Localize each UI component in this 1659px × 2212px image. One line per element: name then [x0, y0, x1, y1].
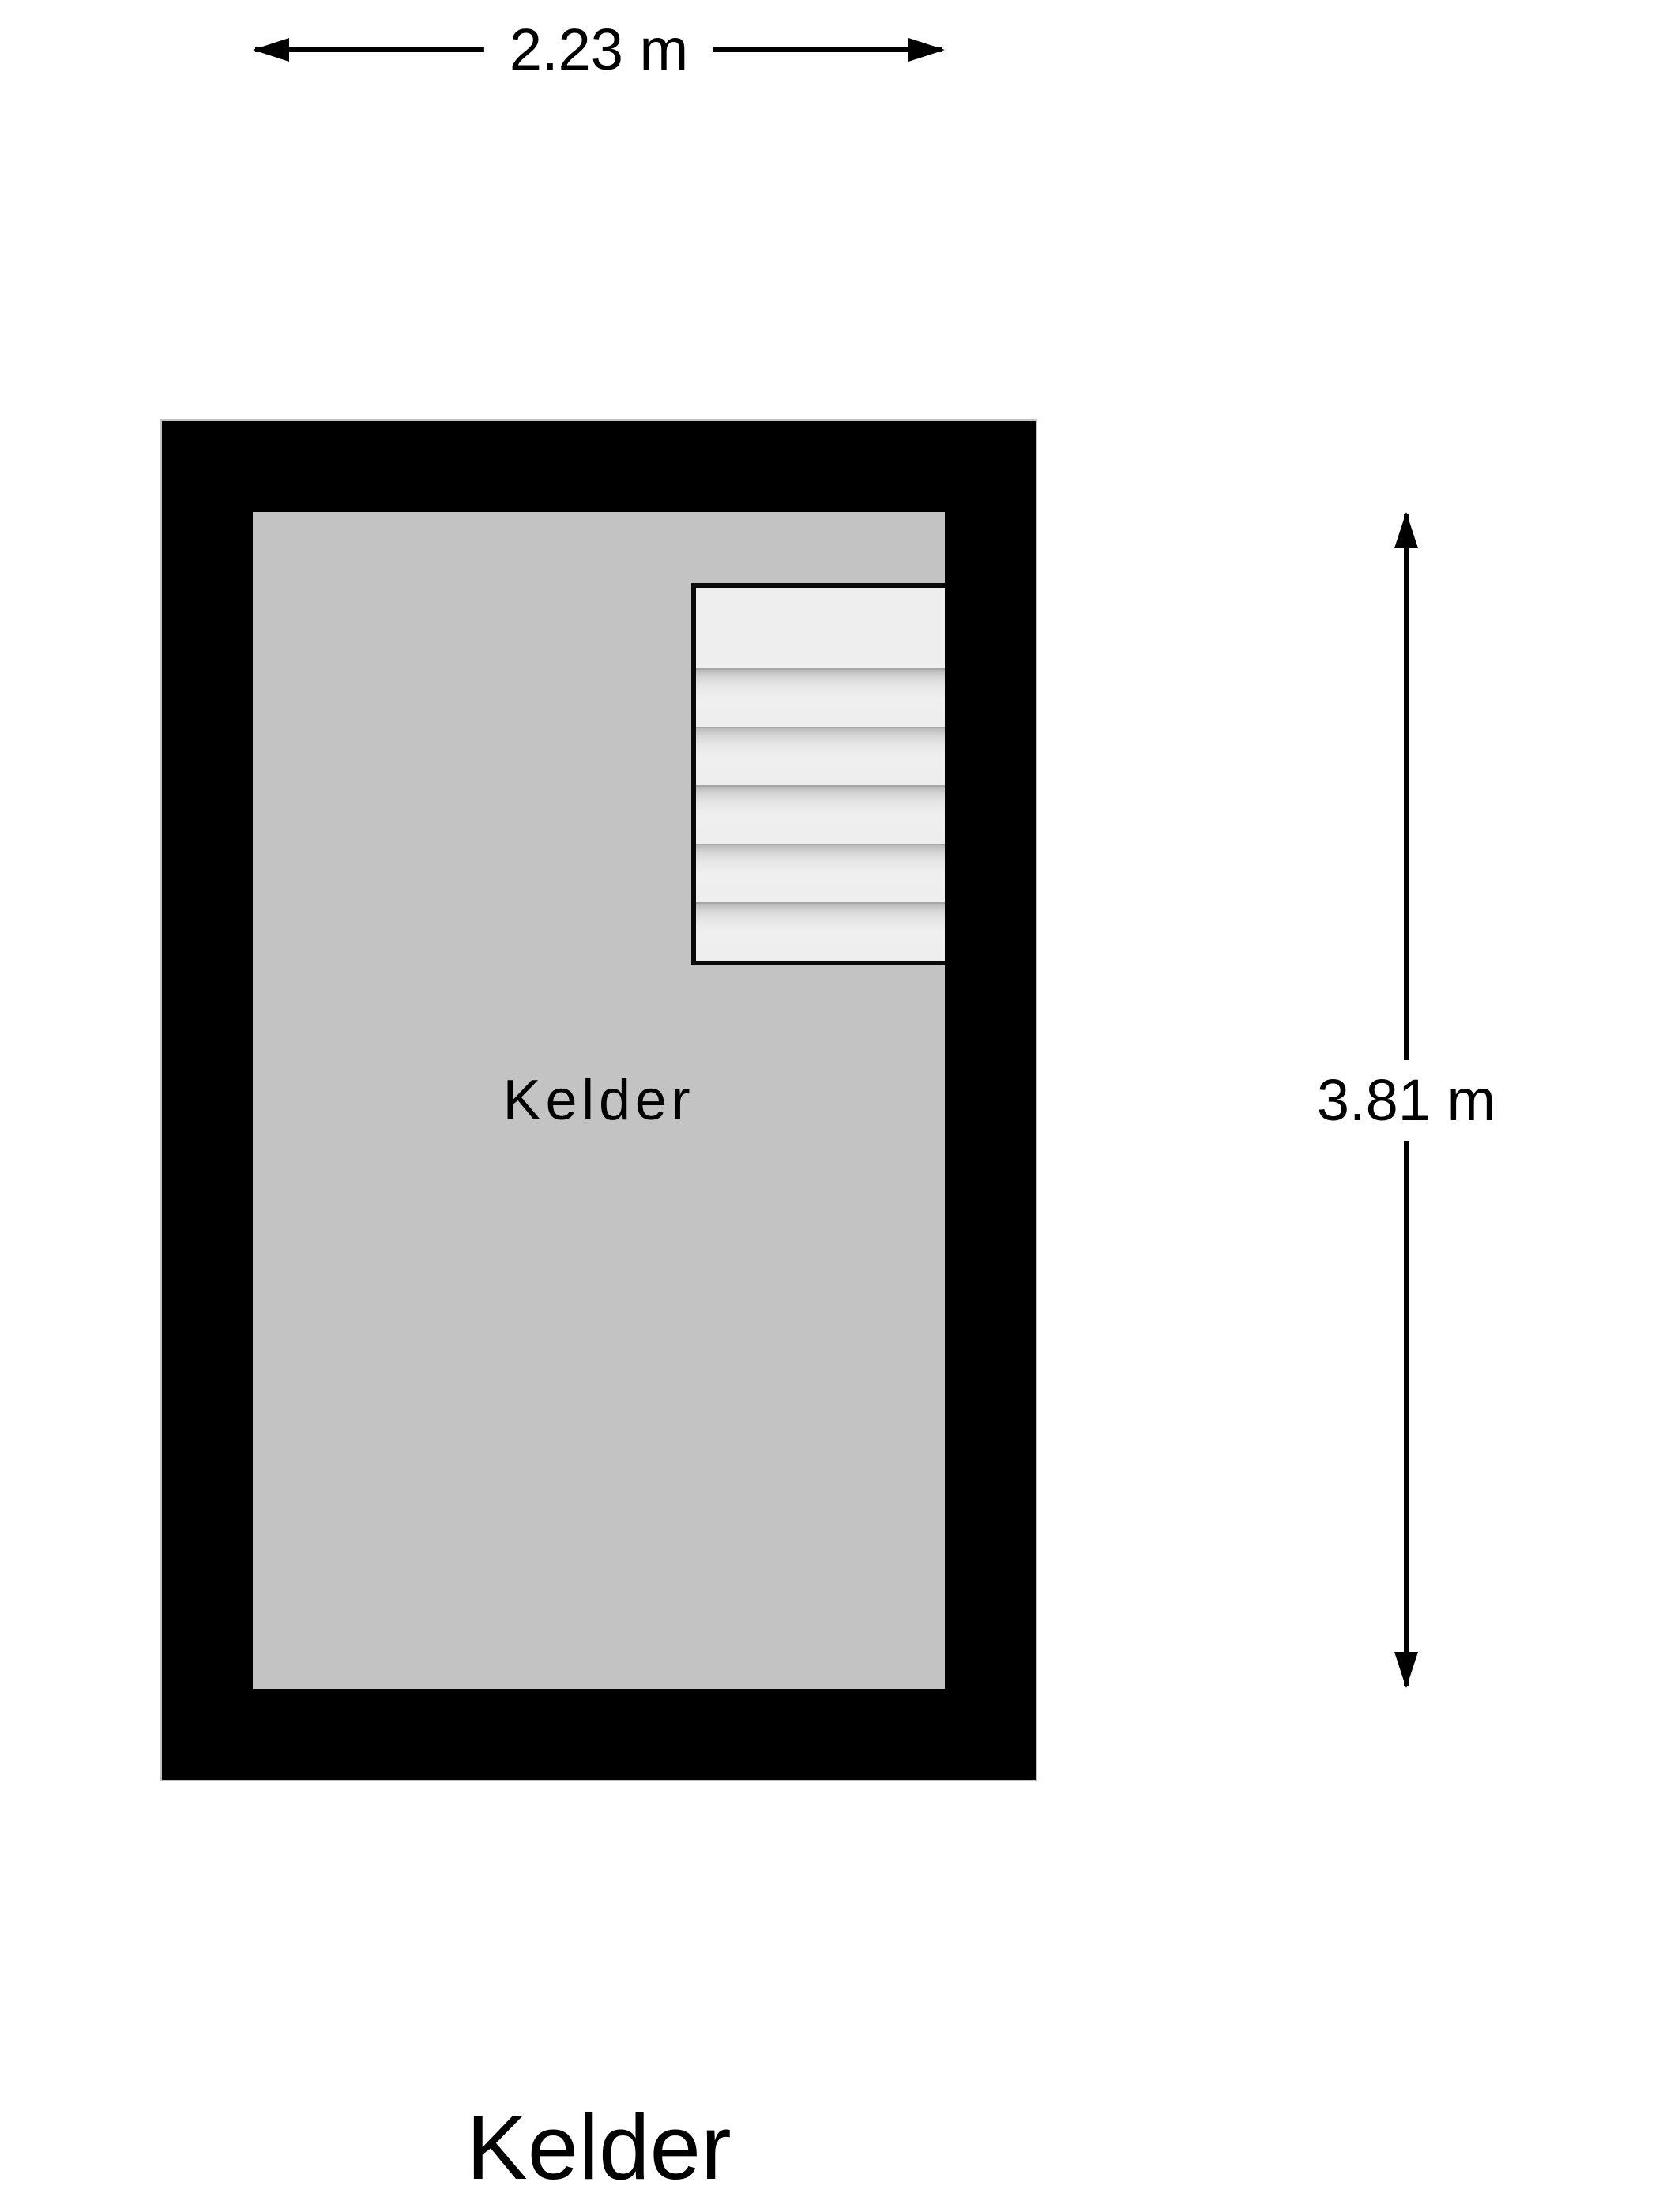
height-dimension: 3.81 m	[1384, 512, 1428, 1688]
width-dimension-label: 2.23 m	[484, 13, 713, 87]
arrowhead-up-icon	[1394, 512, 1418, 548]
room-label: Kelder	[253, 512, 945, 1689]
height-dimension-label: 3.81 m	[1307, 1060, 1505, 1141]
room-interior-floor: Kelder	[253, 512, 945, 1689]
arrowhead-right-icon	[908, 38, 945, 62]
room-kelder: Kelder	[162, 421, 1036, 1780]
floorplan-canvas: 2.23 m Kelder 3.81 m Kelder	[0, 0, 1659, 2212]
arrowhead-down-icon	[1394, 1652, 1418, 1688]
figure-title: Kelder	[162, 2101, 1036, 2193]
arrowhead-left-icon	[253, 38, 289, 62]
width-dimension: 2.23 m	[253, 26, 945, 73]
